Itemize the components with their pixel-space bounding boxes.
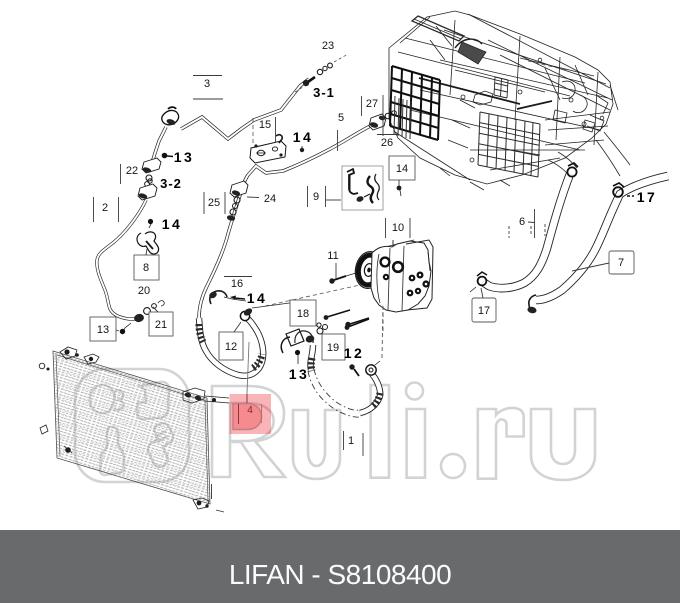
svg-text:10: 10: [392, 222, 404, 234]
svg-text:17: 17: [637, 189, 658, 205]
svg-text:27: 27: [366, 98, 378, 110]
svg-text:3-1: 3-1: [313, 85, 335, 100]
svg-text:13: 13: [289, 366, 310, 382]
svg-text:9: 9: [313, 191, 319, 203]
svg-text:14: 14: [293, 129, 314, 145]
svg-text:3-2: 3-2: [160, 176, 182, 191]
svg-text:16: 16: [231, 278, 243, 290]
svg-text:22: 22: [126, 165, 138, 177]
svg-text:24: 24: [264, 193, 276, 205]
svg-text:11: 11: [327, 250, 338, 262]
svg-text:13: 13: [174, 149, 195, 165]
svg-text:13: 13: [97, 324, 109, 336]
svg-text:4: 4: [247, 405, 253, 416]
svg-text:14: 14: [162, 216, 183, 232]
svg-text:6: 6: [519, 216, 525, 228]
svg-text:LIFAN - S8108400: LIFAN - S8108400: [229, 559, 451, 590]
svg-text:1: 1: [348, 435, 354, 447]
svg-text:25: 25: [208, 197, 220, 209]
svg-text:12: 12: [344, 345, 365, 361]
svg-text:18: 18: [297, 308, 309, 320]
svg-text:3: 3: [204, 78, 210, 90]
svg-text:19: 19: [327, 342, 339, 354]
svg-text:20: 20: [138, 285, 150, 297]
svg-text:12: 12: [225, 341, 237, 353]
svg-text:14: 14: [247, 290, 268, 306]
svg-text:17: 17: [478, 305, 490, 317]
svg-text:7: 7: [618, 257, 624, 269]
svg-text:8: 8: [143, 262, 149, 274]
svg-text:26: 26: [381, 137, 393, 149]
svg-text:2: 2: [102, 202, 108, 214]
svg-text:5: 5: [338, 112, 344, 124]
svg-text:15: 15: [259, 119, 271, 131]
svg-text:14: 14: [396, 163, 408, 175]
svg-text:21: 21: [155, 319, 167, 331]
svg-text:23: 23: [322, 40, 334, 52]
